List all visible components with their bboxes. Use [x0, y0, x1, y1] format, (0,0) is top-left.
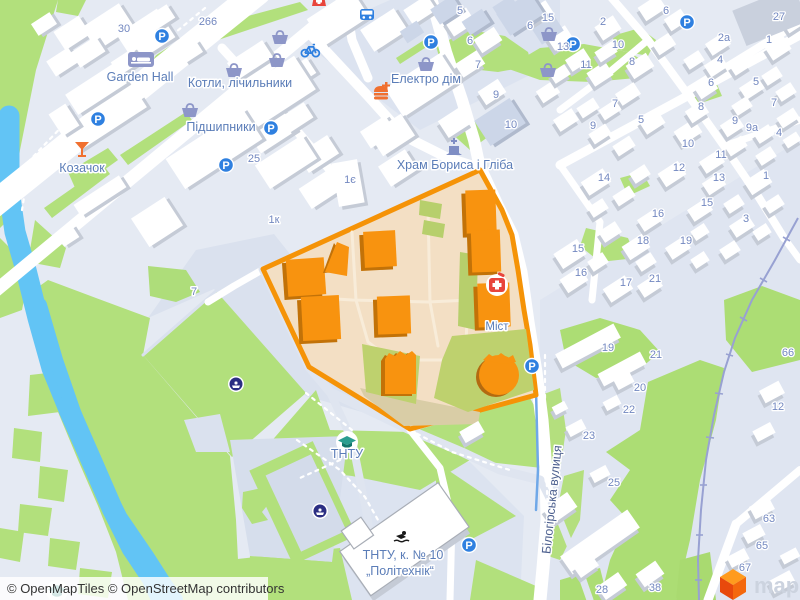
svg-text:8: 8	[698, 101, 704, 113]
svg-text:„Політехнік“: „Політехнік“	[366, 564, 434, 578]
svg-text:1: 1	[763, 170, 769, 182]
svg-text:P: P	[427, 37, 434, 49]
svg-text:7: 7	[191, 286, 197, 298]
svg-text:7: 7	[771, 97, 777, 109]
svg-text:2: 2	[600, 16, 606, 28]
svg-text:30: 30	[118, 23, 130, 35]
svg-text:P: P	[683, 17, 690, 29]
svg-text:1: 1	[766, 34, 772, 46]
svg-text:25: 25	[608, 477, 620, 489]
svg-text:7: 7	[475, 59, 481, 71]
svg-text:16: 16	[652, 208, 664, 220]
svg-text:P: P	[222, 160, 229, 172]
svg-text:P: P	[94, 114, 101, 126]
svg-text:266: 266	[199, 16, 217, 28]
svg-text:Котли, лічильники: Котли, лічильники	[188, 76, 292, 90]
svg-text:38: 38	[649, 582, 661, 594]
svg-text:Храм Бориса і Гліба: Храм Бориса і Гліба	[397, 158, 513, 172]
svg-text:10: 10	[682, 138, 694, 150]
svg-text:63: 63	[763, 513, 775, 525]
svg-text:9: 9	[732, 115, 738, 127]
svg-text:9: 9	[493, 89, 499, 101]
svg-text:P: P	[465, 540, 472, 552]
svg-text:23: 23	[583, 430, 595, 442]
svg-text:28: 28	[596, 584, 608, 596]
svg-text:65: 65	[756, 540, 768, 552]
svg-text:11: 11	[715, 149, 726, 161]
svg-text:7: 7	[612, 98, 618, 110]
svg-text:9a: 9a	[746, 122, 759, 134]
svg-text:15: 15	[701, 197, 713, 209]
svg-text:P: P	[528, 361, 535, 373]
svg-text:6: 6	[467, 35, 473, 47]
svg-text:1є: 1є	[344, 174, 356, 186]
svg-text:Garden Hall: Garden Hall	[107, 70, 174, 84]
svg-text:Підшипники: Підшипники	[186, 120, 255, 134]
svg-text:P: P	[158, 31, 165, 43]
svg-text:12: 12	[673, 162, 685, 174]
svg-text:2a: 2a	[718, 32, 731, 44]
svg-text:6: 6	[708, 77, 714, 89]
svg-text:6: 6	[663, 5, 669, 17]
svg-text:14: 14	[598, 172, 610, 184]
svg-text:Козачок: Козачок	[59, 161, 105, 175]
svg-text:P: P	[267, 123, 274, 135]
svg-text:Міст: Міст	[485, 321, 509, 333]
svg-text:4: 4	[717, 54, 723, 66]
svg-text:13: 13	[713, 172, 725, 184]
svg-text:16: 16	[575, 267, 587, 279]
svg-text:8: 8	[629, 56, 635, 68]
svg-text:11: 11	[580, 59, 591, 71]
svg-text:21: 21	[649, 273, 661, 285]
svg-text:6: 6	[527, 20, 533, 32]
svg-text:P: P	[569, 39, 576, 51]
svg-text:22: 22	[623, 404, 635, 416]
svg-text:© OpenMapTiles © OpenStreetMap: © OpenMapTiles © OpenStreetMap contribut…	[7, 581, 285, 596]
svg-text:10: 10	[612, 39, 624, 51]
svg-text:15: 15	[542, 12, 554, 24]
svg-text:5: 5	[638, 114, 644, 126]
svg-text:4: 4	[776, 127, 782, 139]
svg-text:10: 10	[505, 119, 517, 131]
svg-text:21: 21	[650, 349, 662, 361]
svg-text:map: map	[754, 573, 799, 598]
svg-text:15: 15	[572, 243, 584, 255]
svg-text:5: 5	[457, 5, 463, 17]
svg-text:5: 5	[753, 76, 759, 88]
svg-text:3: 3	[743, 213, 749, 225]
svg-text:25: 25	[248, 153, 260, 165]
svg-text:17: 17	[620, 277, 632, 289]
svg-text:12: 12	[772, 401, 784, 413]
svg-text:9: 9	[590, 120, 596, 132]
svg-text:19: 19	[602, 342, 614, 354]
svg-text:13: 13	[557, 41, 569, 53]
svg-text:ТНТУ, к. № 10: ТНТУ, к. № 10	[363, 548, 444, 562]
svg-text:ТНТУ: ТНТУ	[331, 447, 363, 461]
svg-text:27: 27	[773, 11, 785, 23]
svg-text:18: 18	[637, 235, 649, 247]
svg-text:66: 66	[782, 347, 794, 359]
svg-text:19: 19	[680, 235, 692, 247]
svg-text:67: 67	[739, 562, 751, 574]
svg-text:20: 20	[634, 382, 646, 394]
svg-text:1к: 1к	[269, 214, 280, 226]
svg-text:Електро дім: Електро дім	[391, 72, 461, 86]
